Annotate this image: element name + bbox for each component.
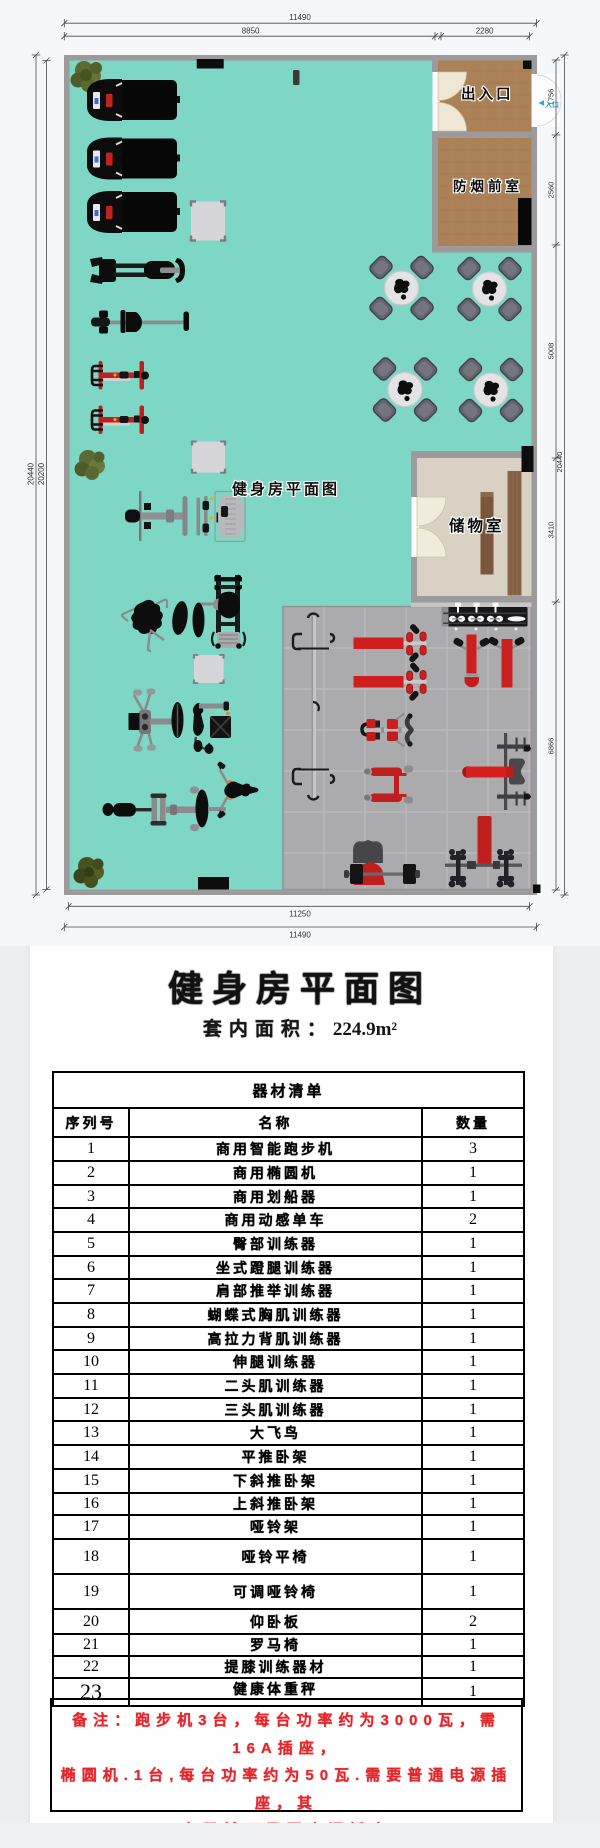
svg-text:20440: 20440 (27, 462, 36, 485)
svg-text:6866: 6866 (547, 738, 556, 755)
svg-text:健身房平面图: 健身房平面图 (232, 480, 340, 498)
svg-text:20440: 20440 (555, 452, 564, 473)
svg-text:11490: 11490 (289, 13, 311, 22)
svg-text:出入口: 出入口 (461, 85, 514, 103)
svg-text:5008: 5008 (547, 343, 556, 360)
svg-text:2560: 2560 (547, 182, 556, 199)
svg-text:2280: 2280 (476, 26, 494, 35)
svg-text:8850: 8850 (242, 26, 260, 35)
svg-text:1756: 1756 (547, 89, 556, 106)
svg-text:11490: 11490 (289, 931, 311, 940)
svg-text:3410: 3410 (547, 522, 556, 539)
svg-text:11250: 11250 (289, 910, 311, 919)
svg-text:储物室: 储物室 (448, 516, 505, 535)
svg-text:20200: 20200 (37, 462, 46, 485)
svg-text:防烟前室: 防烟前室 (453, 178, 523, 194)
